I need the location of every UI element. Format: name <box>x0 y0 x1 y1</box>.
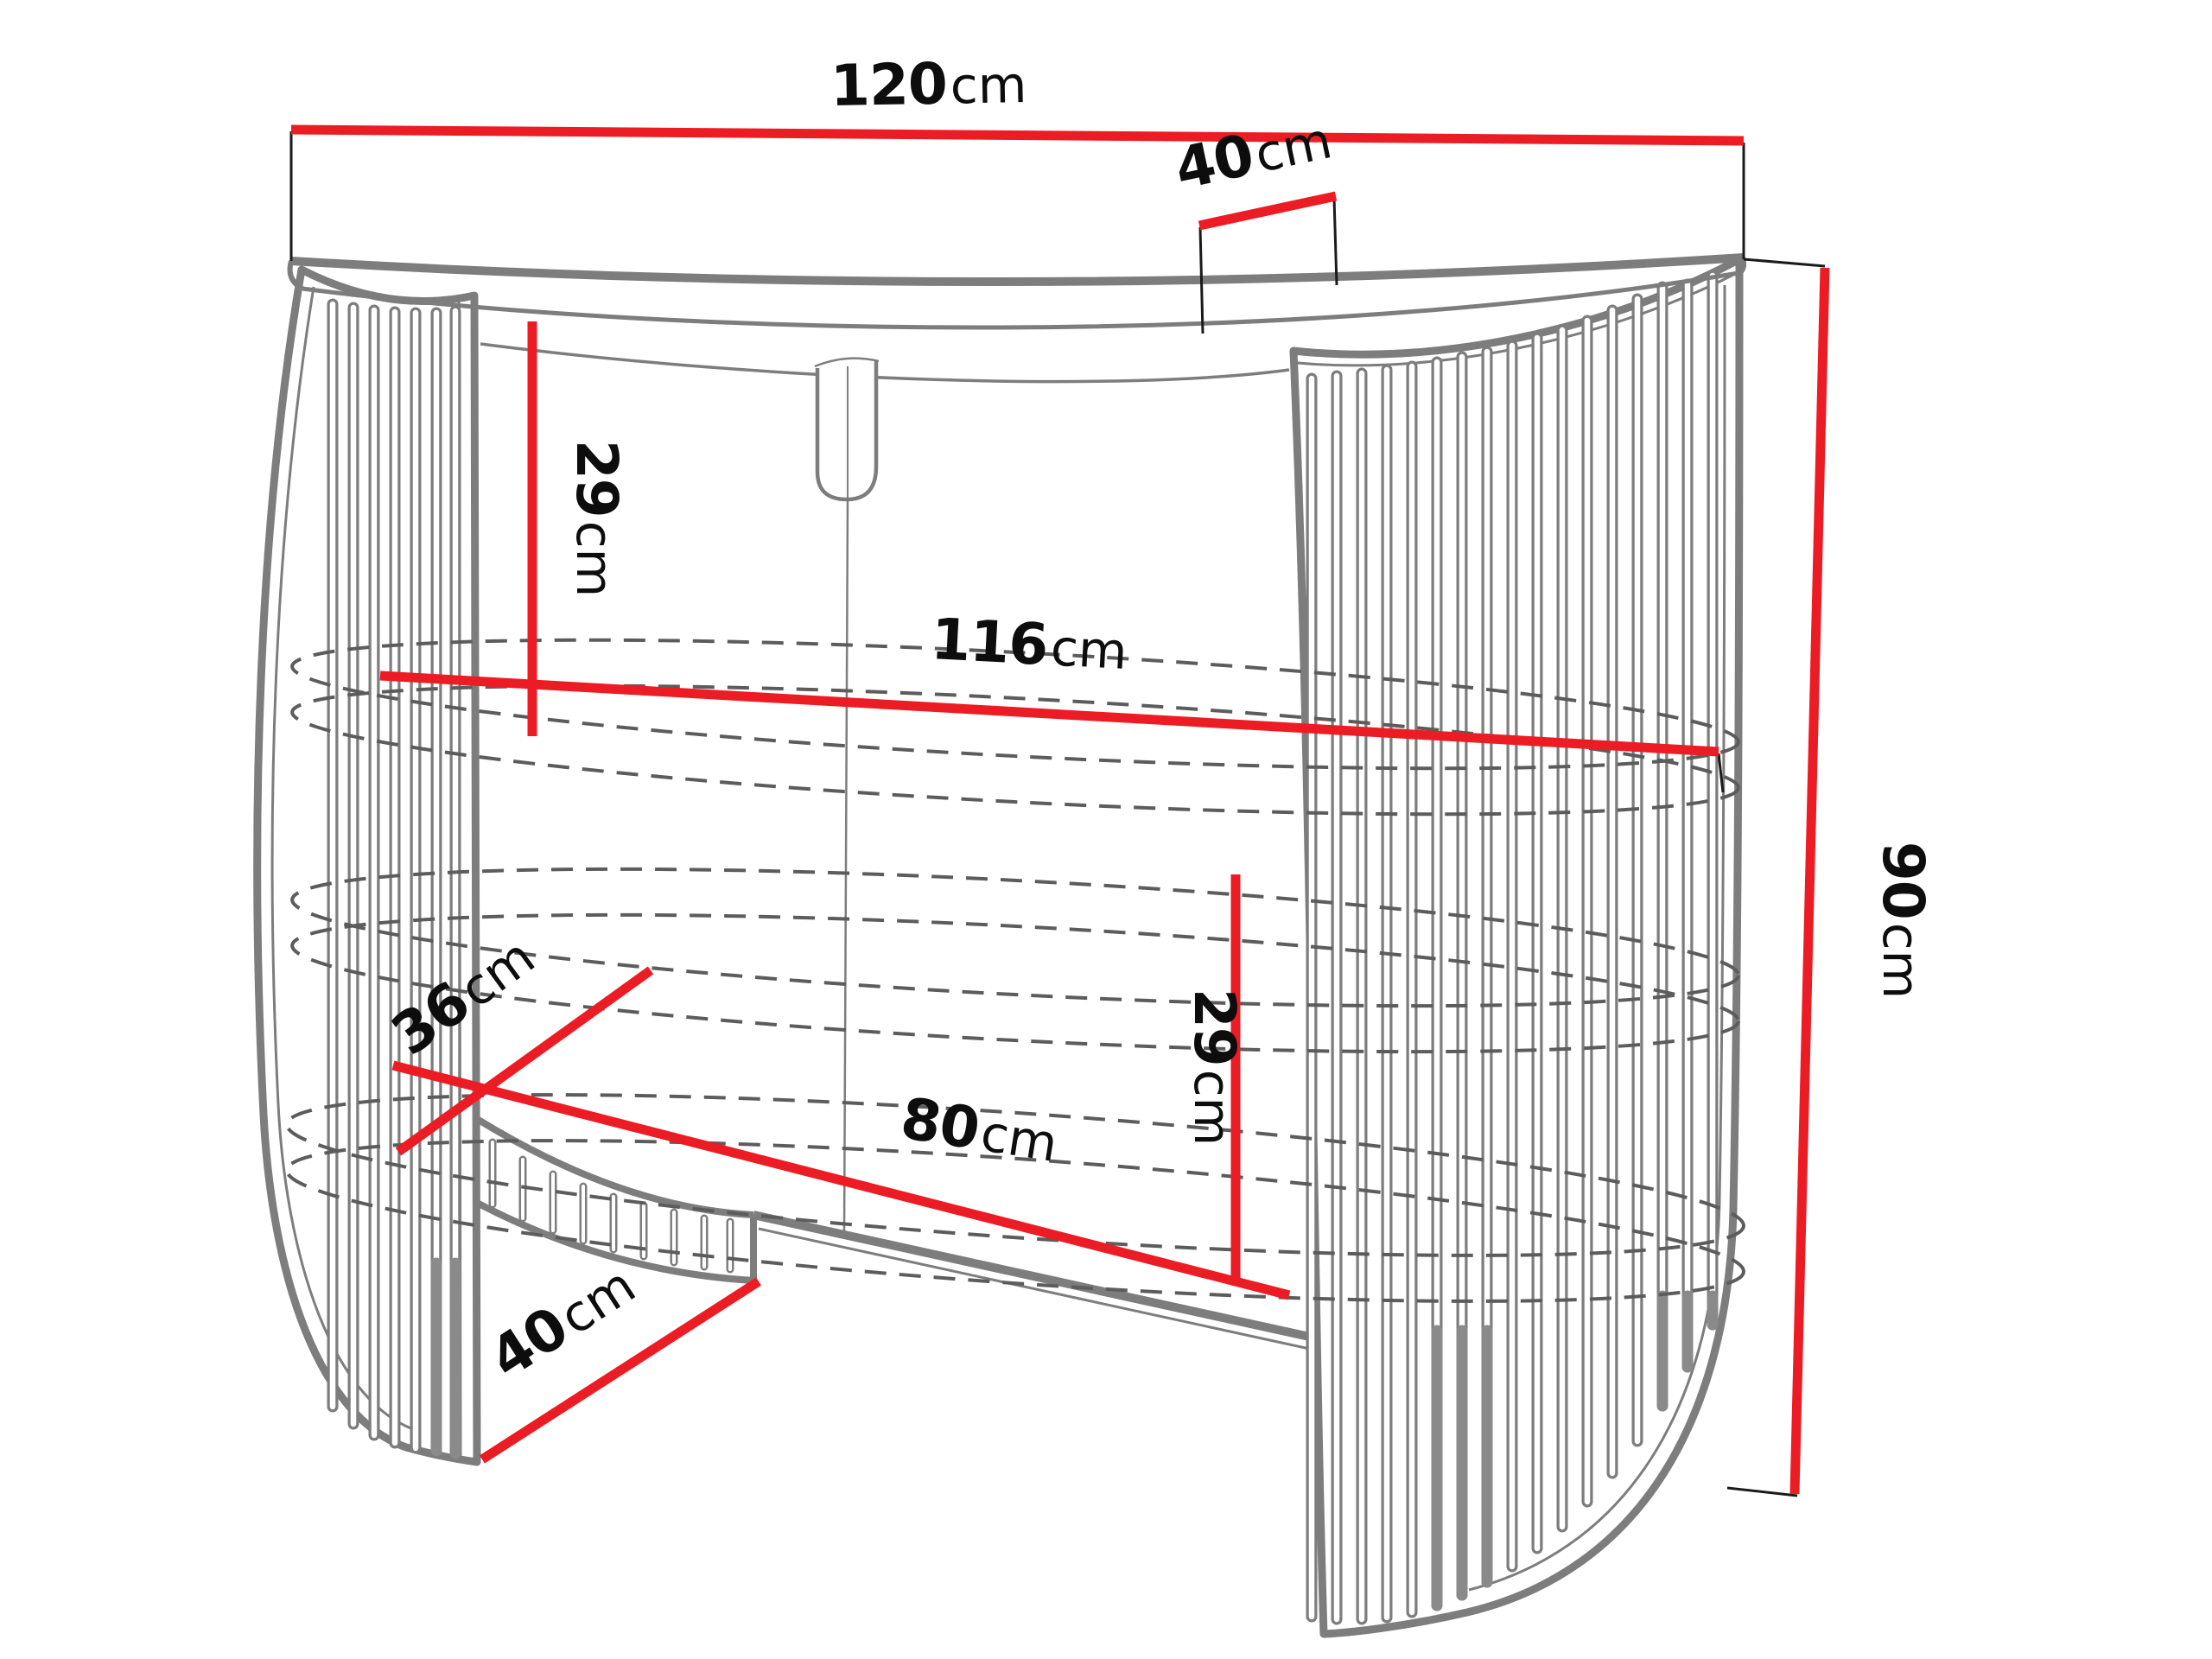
dim-label-top-depth: 40cm <box>1169 105 1337 202</box>
ext-line-right-horizontal <box>1744 259 1825 266</box>
dim-label-opening-width: 80cm <box>896 1084 1062 1175</box>
recess-floor-shadow-line <box>759 1229 1313 1350</box>
dim-line-total-height <box>1795 268 1825 1494</box>
tabletop <box>290 257 1745 327</box>
dim-line-total-width <box>291 130 1744 141</box>
door-gap-line <box>844 499 848 1234</box>
ext-line-depth-back <box>1334 198 1337 285</box>
tabletop-back-edge <box>291 257 1744 282</box>
dim-label-total-height: 90cm <box>1870 842 1936 999</box>
left-pedestal-body <box>257 270 477 1462</box>
ext-line-height-bottom <box>1727 1488 1797 1496</box>
dim-label-inner-shelf-width: 116cm <box>930 606 1129 683</box>
recess-top-rim <box>480 344 1289 382</box>
handle-recess <box>815 359 879 499</box>
dim-line-opening-width <box>393 1065 1289 1295</box>
ext-line-depth-front <box>1200 227 1203 334</box>
furniture-dimension-diagram: 120cm 40cm 29cm 116cm 90cm 36cm 80cm 29c… <box>0 0 2212 1659</box>
dim-line-top-depth <box>1199 196 1336 226</box>
dim-label-total-width: 120cm <box>829 49 1027 119</box>
dim-label-top-to-shelf: 29cm <box>563 440 630 597</box>
diagram-canvas: 120cm 40cm 29cm 116cm 90cm 36cm 80cm 29c… <box>0 0 2212 1659</box>
left-pedestal <box>257 270 477 1462</box>
